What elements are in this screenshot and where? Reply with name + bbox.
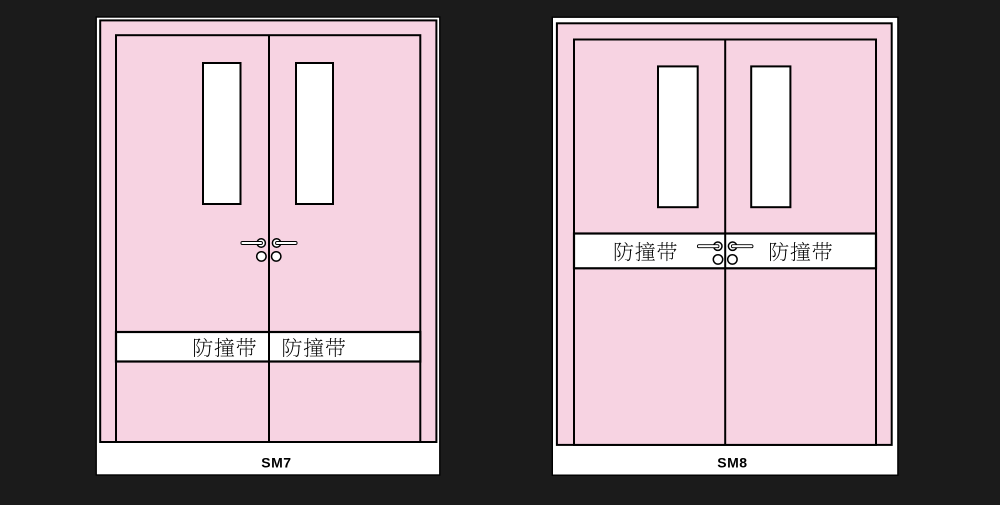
svg-text:SM7: SM7 xyxy=(261,455,291,471)
svg-text:SM8: SM8 xyxy=(717,455,747,471)
